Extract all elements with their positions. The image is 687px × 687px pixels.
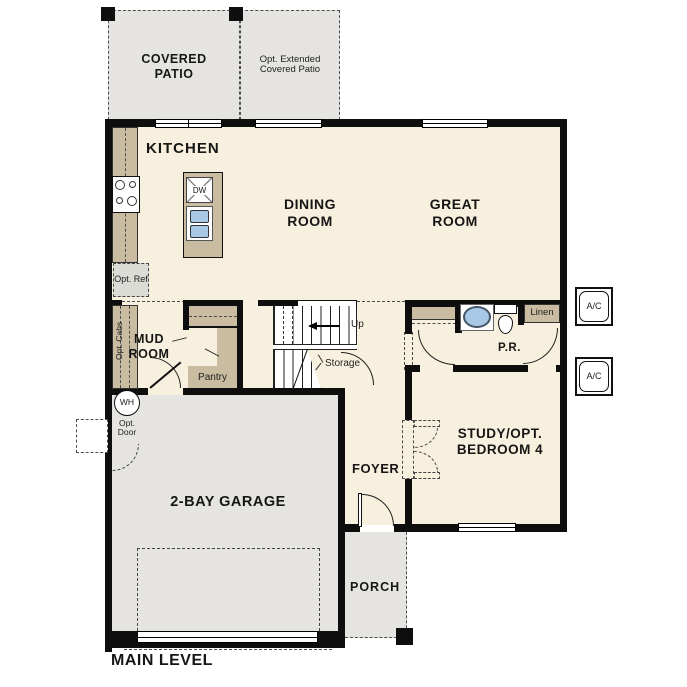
great-room-label: GREAT ROOM (413, 196, 497, 229)
pr-bottom-wall (556, 365, 567, 372)
sink-basin (190, 225, 209, 238)
powder-room-label: P.R. (498, 342, 521, 356)
water-heater-icon: WH (114, 390, 140, 416)
garage-label: 2-BAY GARAGE (168, 494, 288, 511)
garage-foyer-wall (338, 388, 345, 648)
floor-plan: COVERED PATIO Opt. Extended Covered Pati… (0, 0, 687, 687)
up-label: Up (351, 319, 364, 330)
stair-rail-gap (283, 306, 293, 344)
closet-left-wall (405, 300, 412, 334)
porch-post (396, 628, 413, 645)
burner-icon (115, 180, 125, 190)
ac-unit-inner: A/C (579, 361, 609, 392)
toilet-tank-icon (494, 304, 517, 314)
hall-opening (357, 301, 405, 302)
dishwasher-label: DW (192, 186, 207, 195)
opt-ref-box: Opt. Ref (113, 263, 149, 297)
window (458, 523, 516, 532)
burner-icon (116, 197, 123, 204)
left-wall (105, 119, 112, 652)
covered-patio-label: COVERED PATIO (127, 52, 221, 82)
window (255, 119, 322, 128)
mudroom-bench (189, 306, 237, 328)
opt-ref-label: Opt. Ref (114, 275, 148, 285)
window (422, 119, 488, 128)
sink-basin (190, 210, 209, 223)
ac-unit: A/C (575, 287, 613, 326)
study-label: STUDY/OPT. BEDROOM 4 (441, 426, 559, 458)
pantry-shelf (217, 328, 237, 368)
study-left-wall (405, 370, 412, 422)
burner-icon (129, 181, 136, 188)
stove-icon (112, 176, 140, 213)
garage-bay-outline (137, 548, 320, 636)
window (188, 119, 222, 128)
garage-top-wall (183, 388, 345, 395)
pr-sink-icon (463, 306, 491, 328)
opt-door-landing (76, 419, 108, 453)
mud-room-label: MUD ROOM (113, 332, 185, 362)
ac-unit: A/C (575, 357, 613, 396)
patio-post (229, 7, 243, 21)
ac-label: A/C (586, 302, 601, 312)
linen-label: Linen (530, 308, 553, 318)
ac-label: A/C (586, 372, 601, 382)
patio-post (101, 7, 115, 21)
island-sink-icon (186, 206, 213, 241)
dishwasher-icon: DW (186, 177, 213, 203)
garage-door-jamb (318, 631, 340, 648)
foyer-bottom-wall (338, 524, 360, 532)
burner-icon (127, 196, 137, 206)
linen-closet: Linen (524, 304, 560, 323)
pr-bottom-wall (453, 365, 528, 372)
garage-door-jamb (109, 631, 137, 648)
dining-room-label: DINING ROOM (268, 196, 352, 229)
up-arrow-line (316, 325, 340, 327)
kitchen-mud-opening (122, 301, 185, 302)
ac-unit-inner: A/C (579, 291, 609, 322)
closet-rod-line (412, 323, 456, 324)
front-door-leaf (358, 493, 362, 527)
window (155, 119, 189, 128)
stair-landing (273, 344, 357, 350)
study-left-wall (405, 478, 412, 532)
porch-label: PORCH (350, 580, 400, 595)
pantry-shelf: Pantry (188, 366, 237, 388)
bench-line (189, 316, 237, 317)
level-title: MAIN LEVEL (111, 652, 213, 671)
study-opt-door-panel (414, 472, 440, 479)
opt-extended-patio-label: Opt. Extended Covered Patio (250, 55, 330, 76)
coat-closet-shelf (412, 307, 456, 320)
foyer-label: FOYER (352, 461, 399, 476)
study-opt-door-opening (402, 420, 414, 479)
mud-stairs-divider (237, 300, 243, 395)
study-opt-door-panel (414, 420, 440, 427)
pantry-label: Pantry (198, 372, 227, 383)
garage-door (137, 631, 318, 643)
right-wall (560, 119, 567, 532)
garage-door-dash (124, 649, 332, 650)
kitchen-label: KITCHEN (146, 140, 220, 158)
opt-door-label: Opt. Door (111, 419, 143, 438)
water-heater-label: WH (120, 398, 134, 407)
